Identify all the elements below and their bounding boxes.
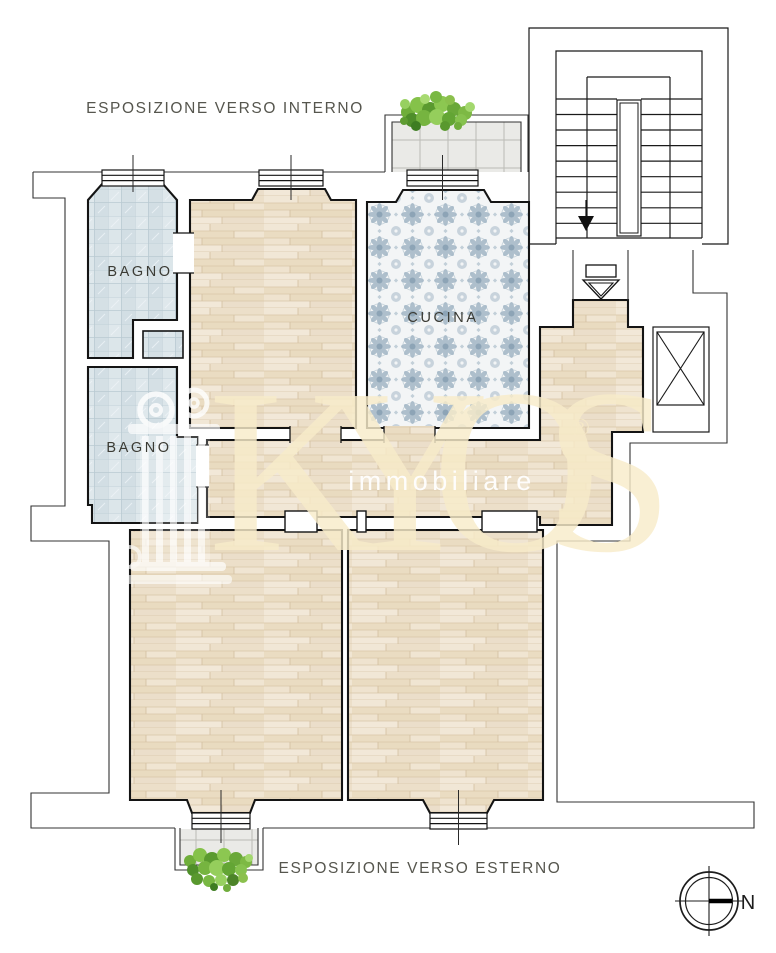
door-bathroom-top bbox=[173, 233, 194, 273]
north-label: N bbox=[741, 892, 755, 914]
annotation-exposure-bottom: ESPOSIZIONE VERSO ESTERNO bbox=[279, 860, 562, 877]
elevator-icon bbox=[653, 327, 709, 432]
compass-icon: N bbox=[675, 866, 755, 936]
watermark-registered-mark: ® bbox=[570, 413, 590, 442]
floor-plan-drawing: KYOS ® immobiliare BAGNO BAGNO CUCINA ES… bbox=[0, 0, 776, 953]
entrance-door-icon bbox=[573, 250, 628, 300]
bathroom-niche bbox=[143, 331, 183, 358]
label-bathroom-top: BAGNO bbox=[107, 264, 172, 280]
label-kitchen: CUCINA bbox=[407, 310, 478, 326]
watermark-subtitle: immobiliare bbox=[348, 466, 536, 496]
stair-direction-arrow-icon bbox=[578, 200, 594, 231]
annotation-exposure-top: ESPOSIZIONE VERSO INTERNO bbox=[86, 100, 364, 117]
label-bathroom-bottom: BAGNO bbox=[106, 440, 171, 456]
floor-plan-page: KYOS ® immobiliare BAGNO BAGNO CUCINA ES… bbox=[0, 0, 776, 953]
staircase bbox=[529, 28, 728, 244]
